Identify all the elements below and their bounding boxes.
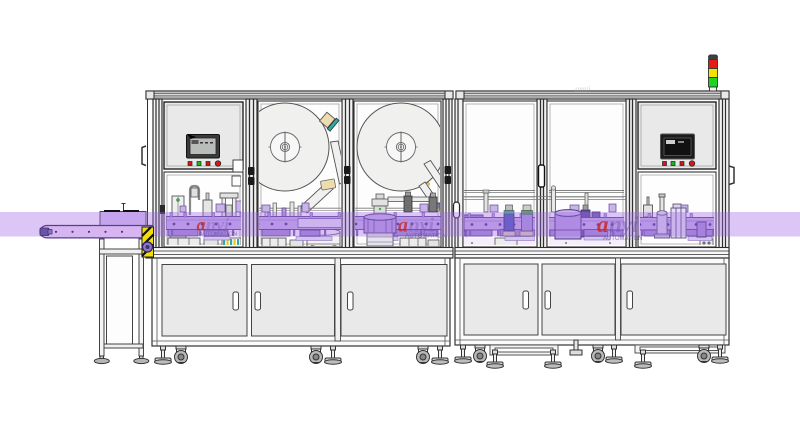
- svg-text:AUTOMATION: AUTOMATION: [199, 232, 237, 238]
- svg-text:AUTOMATION: AUTOMATION: [603, 236, 642, 242]
- svg-text:anyi: anyi: [575, 84, 591, 94]
- svg-text:AUTOMATION: AUTOMATION: [405, 233, 447, 240]
- svg-text:a: a: [597, 212, 609, 237]
- svg-text:nyi: nyi: [609, 212, 639, 237]
